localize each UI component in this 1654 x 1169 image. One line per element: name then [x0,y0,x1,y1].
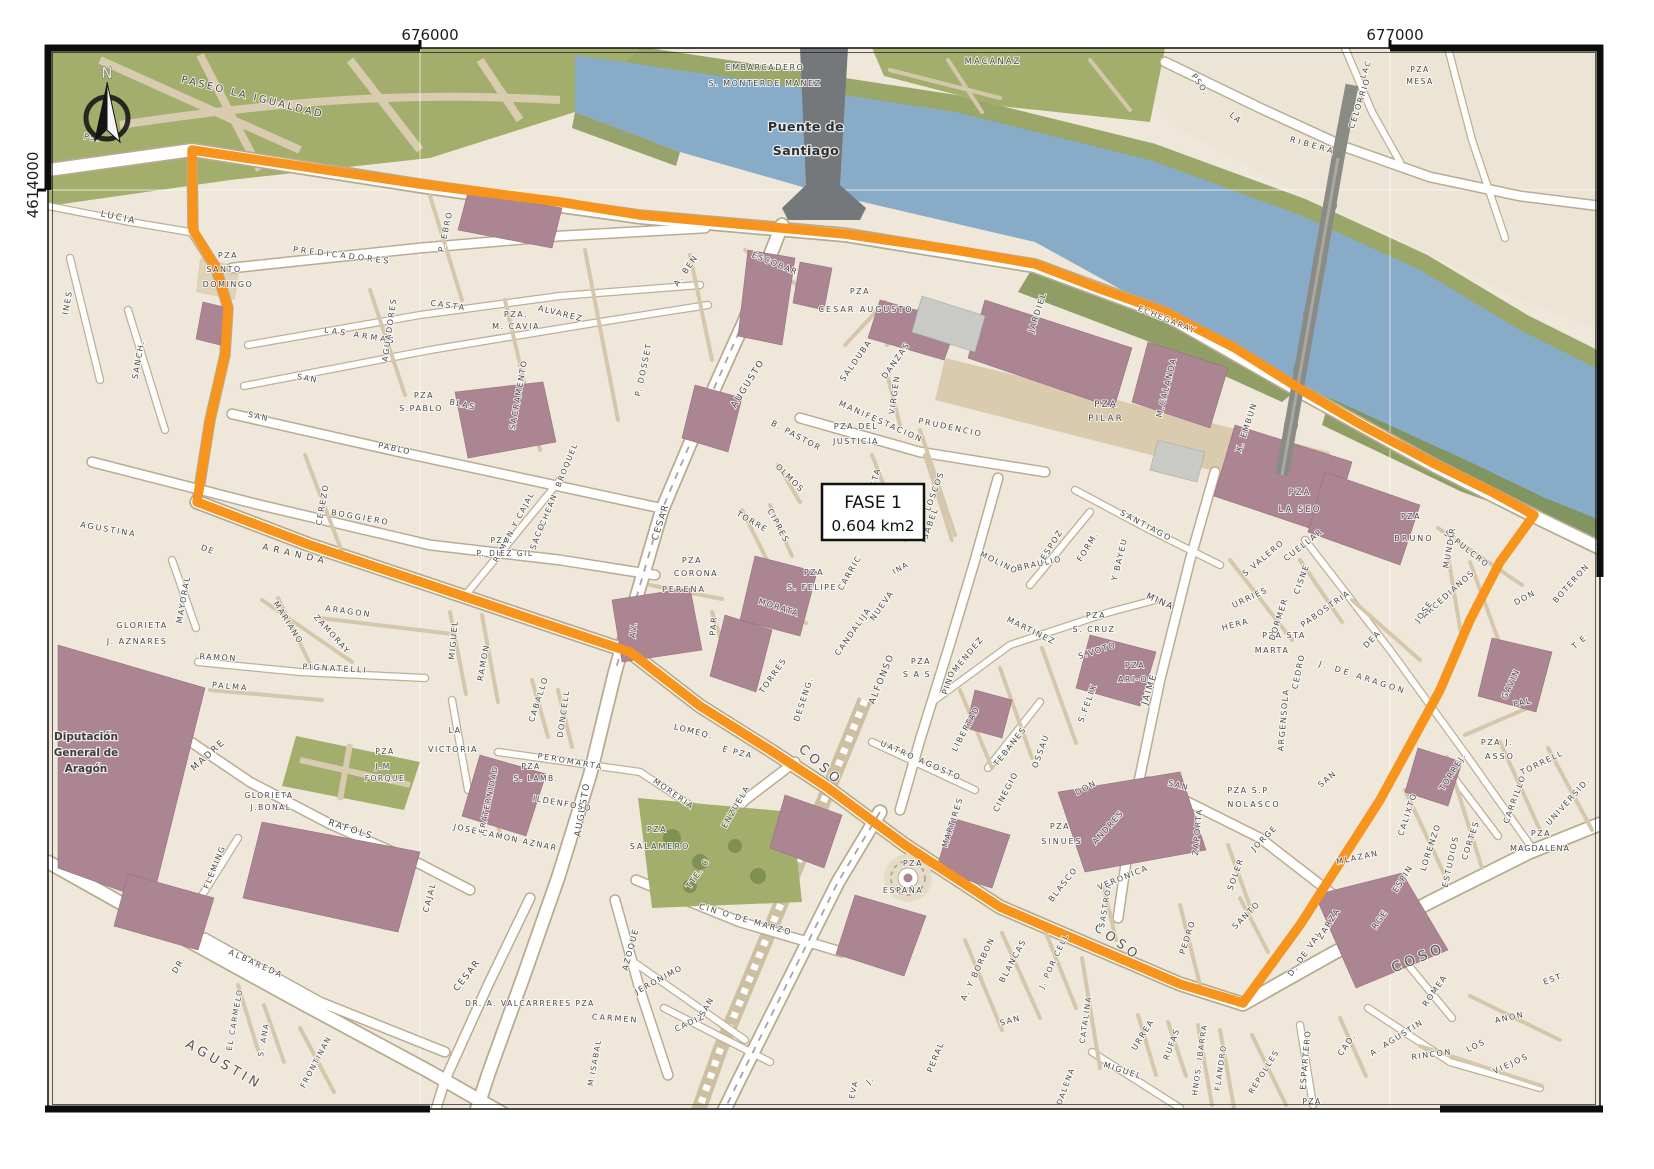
map-label: AV. [628,621,638,638]
map-label: LA [448,726,461,735]
map-label: PZA [647,825,667,834]
coord-easting-left: 676000 [401,26,458,44]
coord-easting-right: 677000 [1366,26,1423,44]
map-label: NOLASCO [1227,800,1280,809]
map-label: EMBARCADERO [726,63,805,72]
map-label: P. DIEZ GIL [476,549,533,558]
map-label: ARI-O [1118,675,1148,684]
map-label: PZA [850,287,870,296]
map-label: S. MONTERDE MANEZ [709,79,822,88]
map-label: PZA [1094,400,1118,410]
map-label: PZA DEL [834,422,879,431]
map-label: PZA [414,391,434,400]
map-label: PZA [375,747,394,756]
map-label: PZA. [504,310,528,319]
fase1-name: FASE 1 [844,493,902,513]
map-label: J.BONAL [250,803,292,812]
map-label: S.PABLO [399,404,443,413]
map-label: J. AZNARES [106,637,168,646]
map-export-page: PASEO LA IGUALDADPS.EMBARCADEROS. MONTER… [0,0,1654,1169]
map-label: PZA [682,556,702,565]
map-label: PAR [708,616,719,637]
map-label: SANTO [206,265,241,274]
map-label: DR. A. VALCARRERES PZA [465,999,595,1008]
map-label: FORQUE [365,774,406,783]
map-label: PZA [903,859,923,868]
map-label: PZA [804,568,824,577]
map-label: BRUNO [1394,534,1433,543]
map-label: CORONA [674,569,718,578]
map-label: M. CAVIA [492,322,540,331]
map-label: General de [54,747,119,759]
map-label: PZA [521,762,540,771]
map-label: MESA [1406,77,1433,86]
map-label: MARTA [1255,646,1290,655]
map-label: S. CRUZ [1072,625,1115,634]
map-label: J.M [374,762,391,771]
map-label: S. LAMB. [513,774,558,783]
coord-northing: 4614000 [24,152,42,219]
fase1-label-box: FASE 1 0.604 km2 [822,484,924,540]
map-label: PILAR [1088,414,1124,424]
map-label: PZA [1125,661,1145,670]
map-label: GLORIETA [245,791,294,800]
map-label: MACANAZ [965,57,1022,67]
map-label: LA SEO [1279,505,1322,515]
map-label: PERENA [662,585,706,594]
map-label: MAGDALENA [1510,844,1570,853]
map-area: PASEO LA IGUALDADPS.EMBARCADEROS. MONTER… [48,48,1600,1160]
map-label: S. FELIPE [787,583,837,592]
map-label: SINUES [1041,837,1082,846]
map-label: CESAR AUGUSTO [818,305,913,314]
map-label: Aragón [65,763,108,775]
map-label: Diputación [54,731,118,743]
map-label: PZA S.P [1227,786,1268,795]
map-label: ESPAÑA [883,885,923,895]
map-canvas: PASEO LA IGUALDADPS.EMBARCADEROS. MONTER… [0,0,1654,1169]
map-label: PZA [1531,829,1551,838]
map-label: PZA. [490,536,513,545]
map-label: SALAMERO [630,842,691,851]
map-label: PZA [1401,512,1421,521]
map-label: PZA [218,251,238,260]
map-label: PZA [1050,822,1070,831]
map-label: GLORIETA [116,621,167,630]
map-label: JUSTICIA [832,437,879,446]
map-label: DOMINGO [203,280,254,289]
map-label: PZA J. [1481,738,1513,747]
fase1-area: 0.604 km2 [831,517,914,535]
map-label: VICTORIA [428,745,478,754]
north-label: N [101,64,112,82]
map-label: ASSO [1485,752,1515,761]
map-label: PZA [911,657,931,666]
map-label: PZA [1289,488,1312,498]
park-salamero [638,798,802,908]
map-label: PZA [1086,611,1106,620]
map-label: Santiago [773,143,840,158]
map-label: PZA [1410,65,1429,74]
map-label: Puente de [768,119,844,134]
map-label: S A S [903,670,931,679]
